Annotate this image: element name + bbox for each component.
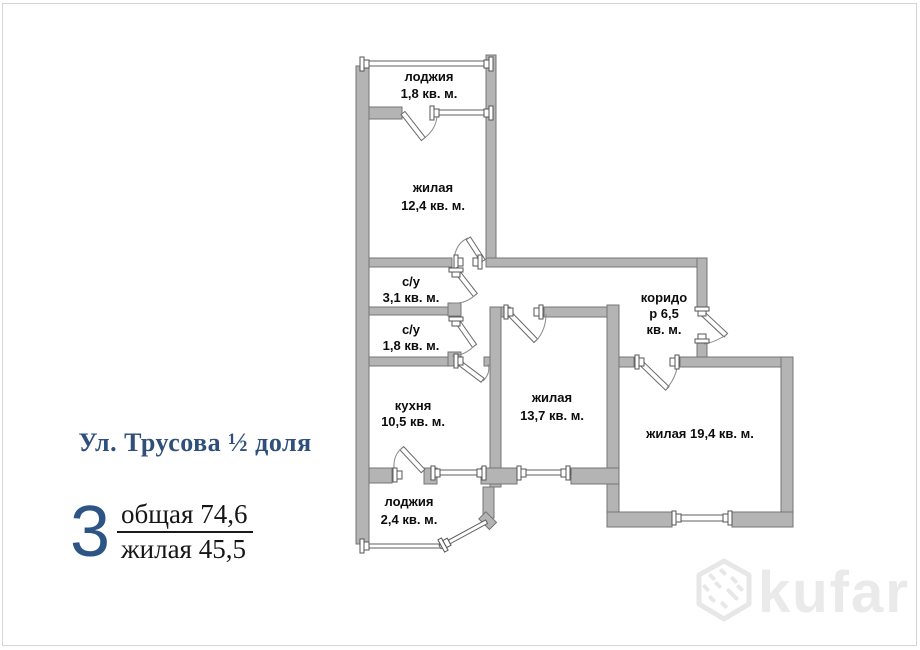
room-label-living-12: жилая 12,4 кв. м. — [401, 180, 465, 213]
room-label-kitchen: кухня 10,5 кв. м. — [381, 398, 445, 429]
room-area: 10,5 кв. м. — [381, 414, 445, 429]
room-name: жилая — [531, 390, 572, 405]
room-area: 2,4 кв. м. — [381, 512, 438, 527]
room-name: лоджия — [385, 494, 434, 509]
room-label-loggia-bottom: лоджия 2,4 кв. м. — [381, 494, 438, 527]
room-area: 3,1 кв. м. — [383, 290, 440, 305]
room-area: р 6,5 — [649, 306, 679, 321]
floor-plan: лоджия 1,8 кв. м. жилая 12,4 кв. м. с/у … — [0, 0, 920, 650]
room-name: коридо — [641, 290, 687, 305]
room-name: с/у — [402, 322, 421, 337]
room-name: с/у — [402, 274, 421, 289]
room-area: 1,8 кв. м. — [401, 86, 458, 101]
room-label-living-194: жилая 19,4 кв. м. — [645, 426, 754, 441]
room-name: кухня — [395, 398, 432, 413]
room-area-units: кв. м. — [647, 322, 682, 337]
room-label-living-137: жилая 13,7 кв. м. — [520, 390, 584, 423]
room-name: жилая — [412, 180, 453, 195]
room-name-area: жилая 19,4 кв. м. — [645, 426, 754, 441]
room-area: 13,7 кв. м. — [520, 408, 584, 423]
room-area: 12,4 кв. м. — [401, 198, 465, 213]
kufar-watermark: kufar — [699, 560, 910, 625]
kufar-brand-text: kufar — [758, 560, 910, 625]
room-label-loggia-top: лоджия 1,8 кв. м. — [401, 69, 458, 101]
room-label-corridor: коридо р 6,5 кв. м. — [641, 290, 687, 337]
room-label-bath-31: с/у 3,1 кв. м. — [383, 274, 440, 305]
kufar-logo-hexagon-icon — [699, 561, 749, 619]
room-area: 1,8 кв. м. — [383, 338, 440, 353]
room-name: лоджия — [405, 69, 454, 84]
room-label-bath-18: с/у 1,8 кв. м. — [383, 322, 440, 353]
